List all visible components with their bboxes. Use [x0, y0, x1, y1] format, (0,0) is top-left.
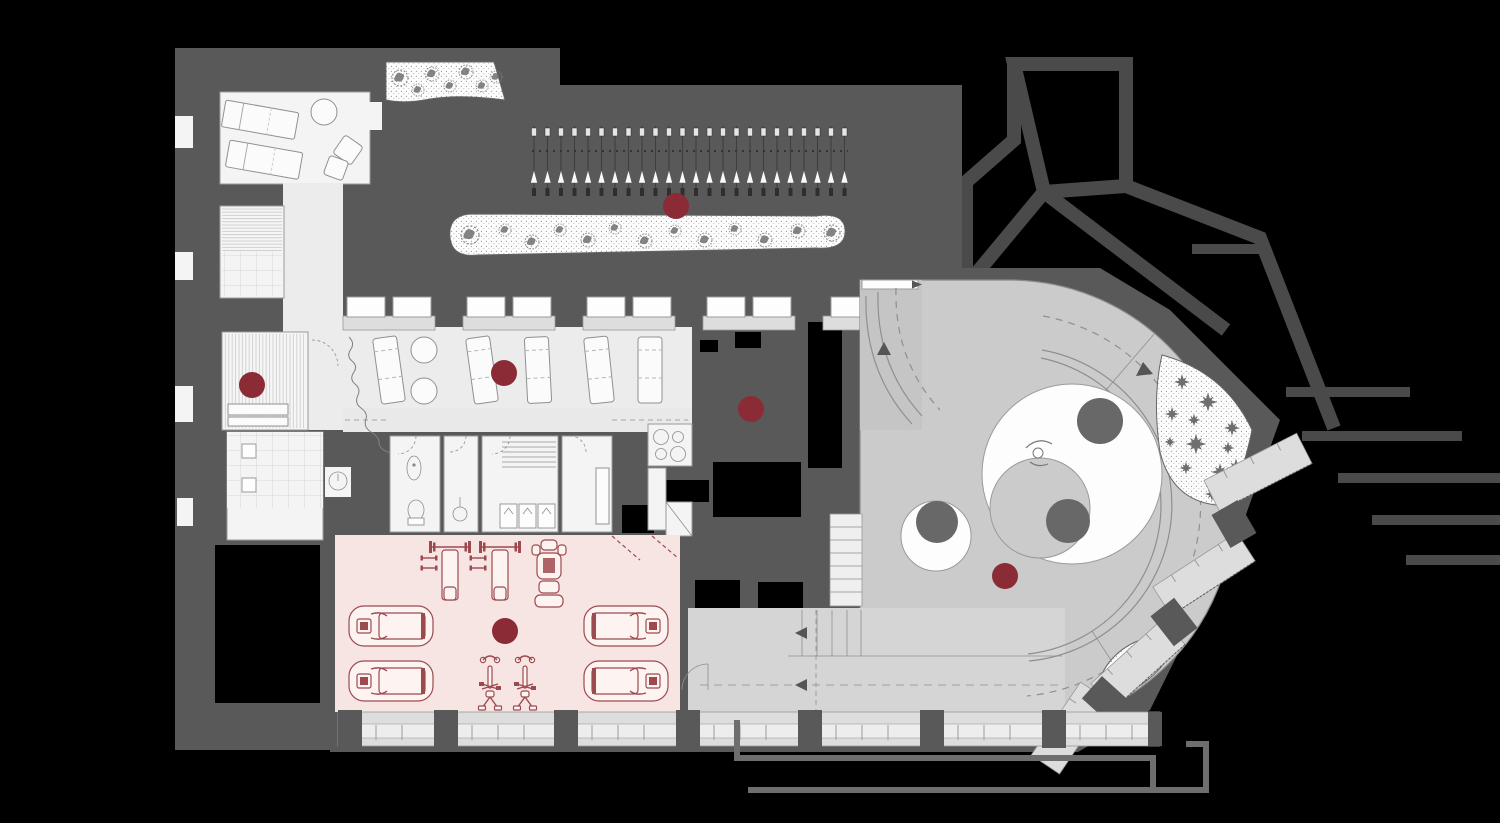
- walkway: [688, 608, 1065, 712]
- treadmill: [584, 661, 668, 701]
- planter-circle: [916, 501, 958, 543]
- washbasins: [500, 504, 555, 528]
- top-garden: [386, 62, 505, 102]
- treadmill: [349, 661, 433, 701]
- side-table: [411, 378, 437, 404]
- side-table: [411, 337, 437, 363]
- location-marker-courtyard[interactable]: [738, 396, 764, 422]
- round-pool: [901, 501, 971, 571]
- sauna-bench: [228, 404, 288, 415]
- location-marker-sauna[interactable]: [239, 372, 265, 398]
- bench: [596, 468, 609, 524]
- pool-crescent: [982, 384, 1162, 564]
- sauna-bench: [228, 417, 288, 426]
- floor-drain: [242, 478, 256, 492]
- floor-plan-svg: [0, 0, 1500, 823]
- location-marker-vine-walk[interactable]: [663, 193, 689, 219]
- location-marker-ramp-terrace[interactable]: [992, 563, 1018, 589]
- treadmill: [584, 606, 668, 646]
- location-marker-gym[interactable]: [492, 618, 518, 644]
- treadmill: [349, 606, 433, 646]
- colonnade: [338, 710, 1162, 748]
- sauna-room: [222, 332, 308, 430]
- planter-circle: [1077, 398, 1123, 444]
- weight-machine: [532, 540, 566, 607]
- location-marker-lounge[interactable]: [491, 360, 517, 386]
- floor-drain: [242, 444, 256, 458]
- stairs: [830, 514, 862, 606]
- bath-block: [390, 436, 612, 532]
- round-table: [311, 99, 337, 125]
- planter-circle: [1046, 499, 1090, 543]
- shower-cell: [444, 436, 478, 532]
- toilet-tank: [408, 518, 424, 525]
- tatami-room: [220, 206, 284, 298]
